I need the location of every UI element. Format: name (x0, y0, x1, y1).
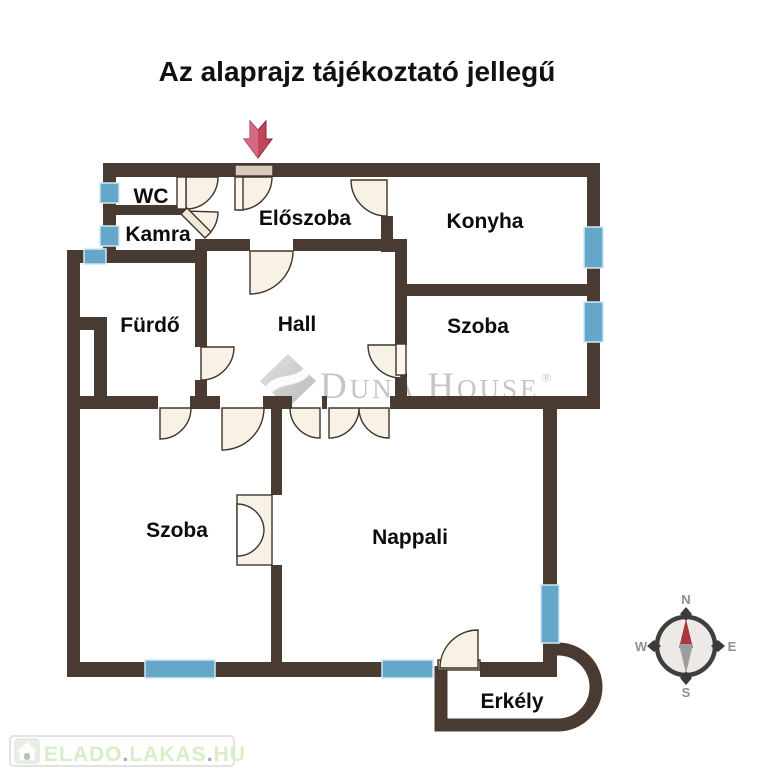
room-label-wc: WC (134, 185, 169, 208)
door-erkely (440, 630, 478, 668)
room-labels: WC Kamra Előszoba Konyha Fürdő Hall Szob… (120, 185, 544, 713)
room-label-konyha: Konyha (446, 210, 523, 233)
room-label-eloszoba: Előszoba (259, 207, 352, 230)
window-wc (100, 183, 119, 203)
room-label-hall: Hall (278, 313, 317, 336)
room-label-szoba-right: Szoba (447, 315, 509, 338)
door-eloszoba-hall (250, 251, 293, 294)
door-entrance (239, 177, 272, 210)
door-wc (186, 177, 218, 209)
window-furdo (84, 249, 106, 264)
floor-plan-canvas: Az alaprajz tájékoztató jellegű DUNAHOUS… (0, 0, 757, 768)
window-szoba-right (584, 302, 603, 342)
watermark-part3: HU (214, 743, 246, 766)
window-nappali-bottom (382, 660, 433, 678)
watermark-part2: LAKAS (129, 743, 206, 766)
compass: N E S W (635, 592, 737, 700)
room-label-szoba-left: Szoba (146, 519, 208, 542)
compass-label-n: N (681, 592, 690, 607)
window-szoba-bottom (145, 660, 215, 678)
logo-registered-mark: ® (541, 370, 554, 385)
door-hall-szoba-right-leaf (396, 344, 406, 375)
door-konyha (351, 180, 387, 216)
door-hall-nappali (290, 408, 320, 438)
watermark-dot1: . (123, 743, 130, 766)
watermark-dot2: . (207, 743, 214, 766)
watermark-text: ELADO.LAKAS.HU (44, 743, 246, 766)
room-label-nappali: Nappali (372, 526, 448, 549)
compass-label-w: W (635, 639, 648, 654)
door-hall-szoba (222, 408, 264, 450)
entrance-arrow-icon (244, 121, 272, 158)
room-label-kamra: Kamra (125, 223, 191, 246)
house-icon-door (24, 753, 30, 760)
window-konyha (584, 227, 603, 268)
room-label-erkely: Erkély (480, 690, 543, 713)
door-furdo-szoba (160, 408, 191, 439)
door-hall-nappali-double (329, 408, 389, 438)
room-label-furdo: Fürdő (120, 314, 179, 337)
door-entrance-leaf (235, 177, 243, 210)
floor-plan-page: Az alaprajz tájékoztató jellegű DUNAHOUS… (0, 0, 757, 768)
window-kamra (100, 226, 119, 246)
door-wc-leaf (177, 177, 186, 209)
window-nappali-right (541, 585, 559, 643)
compass-label-s: S (682, 685, 691, 700)
page-title: Az alaprajz tájékoztató jellegű (159, 56, 556, 87)
watermark-part1: ELADO (44, 743, 123, 766)
entrance-threshold (235, 165, 273, 176)
door-furdo-hall (201, 347, 234, 380)
compass-label-e: E (728, 639, 737, 654)
elado-lakas-watermark: ELADO.LAKAS.HU (10, 736, 246, 766)
